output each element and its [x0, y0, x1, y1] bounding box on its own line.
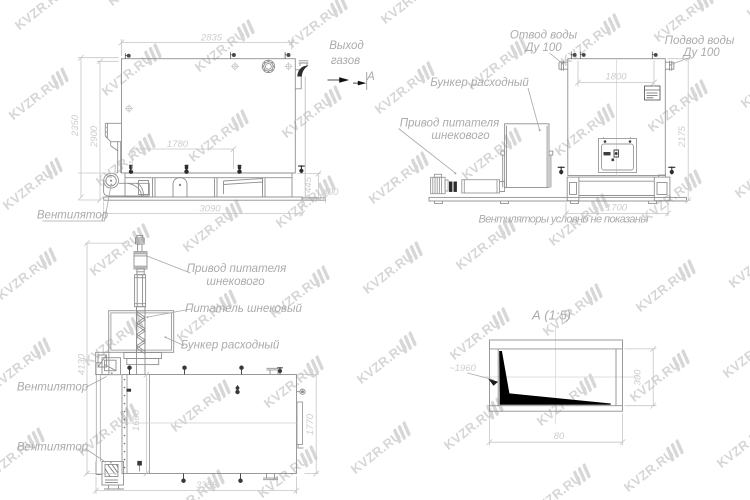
svg-text:KVZR.RU: KVZR.RU: [714, 422, 750, 471]
svg-text:Питатель шнековый: Питатель шнековый: [185, 303, 302, 315]
svg-text:KVZR.RU: KVZR.RU: [105, 0, 161, 9]
svg-text:KVZR.RU: KVZR.RU: [378, 0, 434, 27]
svg-text:Вентилятор: Вентилятор: [17, 382, 89, 394]
svg-text:KVZR.RU: KVZR.RU: [720, 332, 750, 381]
svg-text:1600: 1600: [131, 409, 142, 431]
svg-text:3090: 3090: [199, 204, 221, 215]
svg-text:Выход: Выход: [329, 40, 364, 52]
svg-text:KVZR.RU: KVZR.RU: [738, 62, 750, 111]
svg-text:шнекового: шнекового: [206, 276, 265, 288]
svg-text:KVZR.RU: KVZR.RU: [744, 0, 750, 21]
svg-text:2175: 2175: [677, 125, 688, 148]
svg-text:80: 80: [554, 431, 565, 442]
svg-text:KVZR.RU: KVZR.RU: [12, 0, 68, 33]
svg-text:~1960: ~1960: [449, 363, 476, 374]
svg-text:KVZR.RU: KVZR.RU: [732, 152, 750, 201]
svg-text:1700: 1700: [606, 203, 628, 214]
svg-text:Отвод воды: Отвод воды: [510, 30, 578, 42]
svg-text:шнекового: шнекового: [431, 130, 490, 142]
svg-text:Подвод воды: Подвод воды: [665, 35, 735, 47]
svg-text:А (1:5): А (1:5): [531, 308, 571, 323]
svg-text:Привод питателя: Привод питателя: [400, 118, 500, 130]
svg-text:4130: 4130: [77, 353, 88, 375]
svg-text:3355: 3355: [196, 480, 218, 491]
svg-text:2835: 2835: [200, 33, 223, 44]
svg-text:1780: 1780: [167, 139, 189, 150]
svg-text:Вентилятор: Вентилятор: [17, 442, 89, 454]
svg-text:KVZR.RU: KVZR.RU: [726, 242, 750, 291]
svg-text:Ду 100: Ду 100: [523, 42, 562, 54]
svg-text:А: А: [366, 71, 375, 83]
svg-text:2350: 2350: [70, 114, 81, 137]
svg-text:1800: 1800: [605, 72, 627, 83]
svg-text:300: 300: [633, 369, 644, 386]
svg-text:Бункер расходный: Бункер расходный: [181, 340, 280, 352]
svg-text:1770: 1770: [305, 413, 316, 435]
svg-text:2900: 2900: [89, 125, 100, 148]
svg-text:445: 445: [303, 176, 314, 193]
svg-text:Вентилятор: Вентилятор: [37, 210, 109, 222]
svg-text:Бункер расходный: Бункер расходный: [430, 77, 529, 89]
svg-text:400: 400: [323, 187, 340, 198]
svg-text:Привод питателя: Привод питателя: [187, 263, 287, 275]
svg-text:газов: газов: [331, 55, 360, 67]
svg-text:Ду 100: Ду 100: [681, 47, 720, 59]
svg-text:Вентиляторы условно не показан: Вентиляторы условно не показаны: [479, 214, 649, 226]
